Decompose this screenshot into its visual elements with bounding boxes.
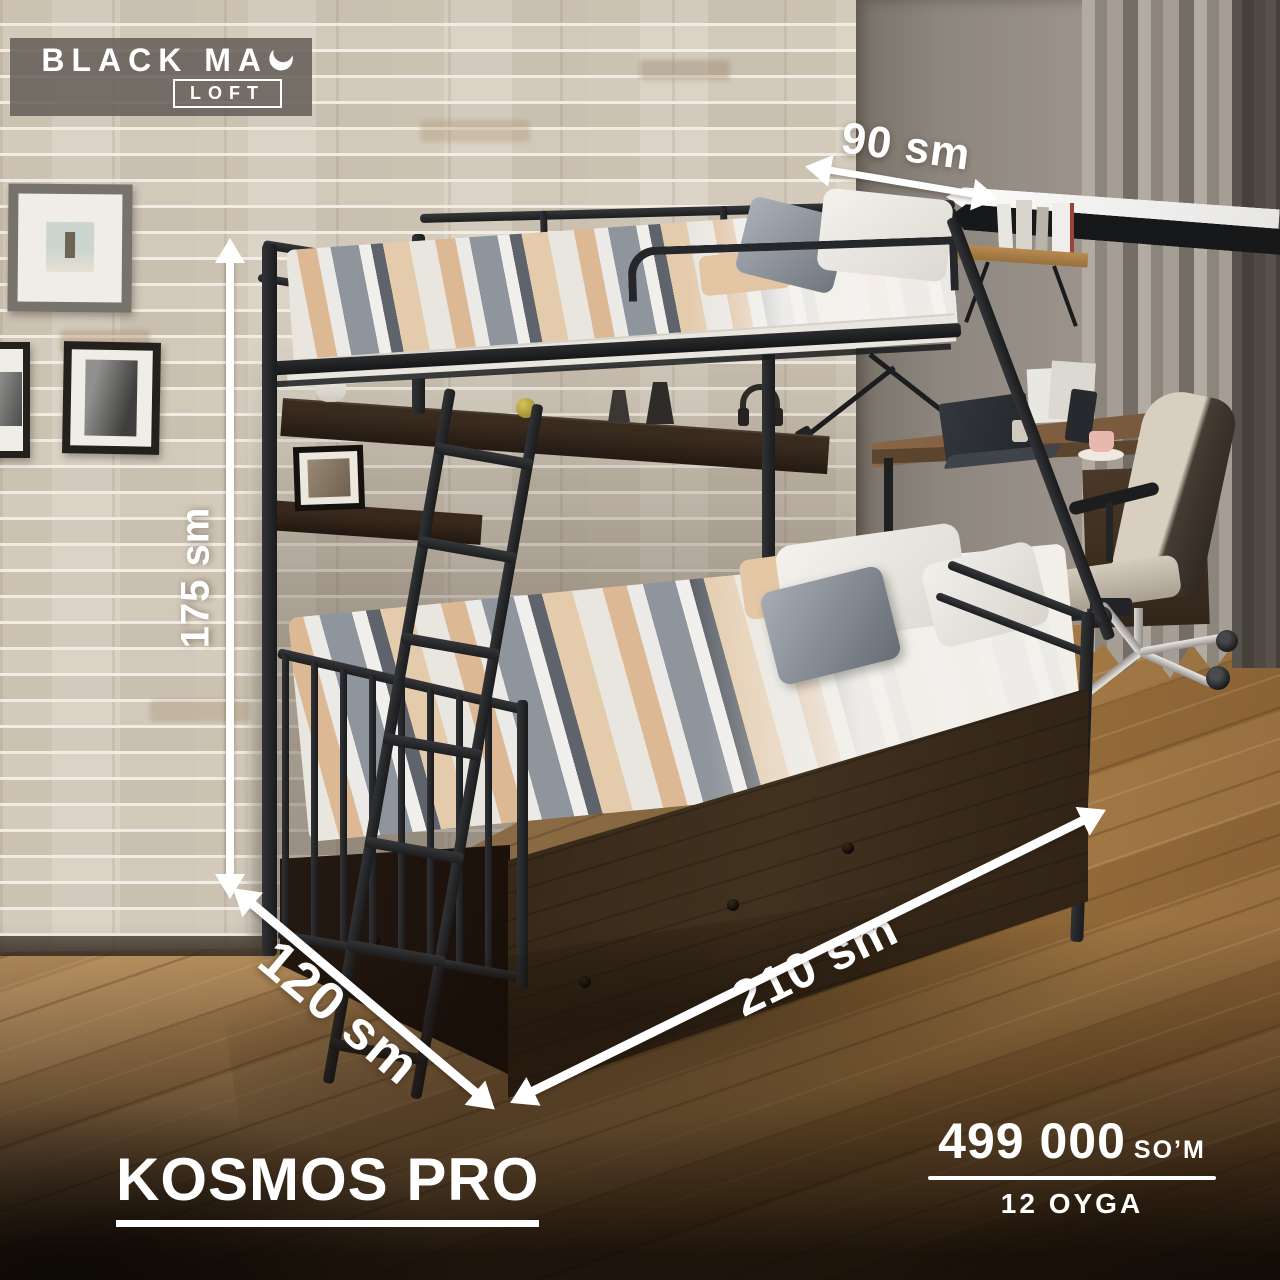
dimension-arrow <box>226 246 234 891</box>
brick-accent <box>640 60 730 80</box>
book <box>1035 207 1049 253</box>
ladder-rung <box>400 632 500 660</box>
ladder-rung <box>417 536 517 564</box>
brand-name-row: BLACK MA <box>41 44 296 76</box>
shelf-photo-frame <box>293 445 365 511</box>
brand-name: BLACK MA <box>41 44 268 76</box>
bed-post-left <box>262 244 277 956</box>
picture-photo <box>84 360 137 437</box>
book <box>1052 203 1074 253</box>
ladder-rung <box>346 939 446 967</box>
footboard-slat <box>340 668 347 946</box>
footboard-slat <box>282 654 289 936</box>
baseboard <box>0 936 268 956</box>
shelf-photo <box>307 458 350 497</box>
brand-badge: LOFT <box>173 79 282 108</box>
upper-guard-rail <box>627 236 959 301</box>
drawer-knob <box>842 842 854 854</box>
ladder-rung <box>364 836 464 864</box>
advertisement-poster: 90 sm 175 sm 120 sm 210 sm BLACK MA LOFT… <box>0 0 1280 1280</box>
brick-accent <box>420 120 530 142</box>
footboard-slat <box>485 701 492 969</box>
book <box>997 204 1013 253</box>
book <box>1016 200 1032 252</box>
footboard-slat <box>311 661 318 941</box>
dimension-label: 175 sm <box>174 503 219 653</box>
brand-logo-plate: BLACK MA LOFT <box>10 38 312 116</box>
curtain-dark-panel <box>1232 0 1280 668</box>
chair-wheel <box>1216 630 1238 652</box>
price-currency: SO’M <box>1134 1136 1206 1165</box>
chair-armrest-support <box>1106 502 1113 562</box>
ladder-rung <box>434 442 534 470</box>
picture-photo-detail <box>65 232 75 258</box>
picture-photo <box>0 372 22 426</box>
brick-accent <box>150 700 250 722</box>
price-divider <box>928 1176 1216 1180</box>
chair-wheel <box>1206 666 1230 690</box>
price-block: 499 000 SO’M 12 OYGA <box>926 1116 1218 1220</box>
picture-frame-left <box>0 342 30 458</box>
product-title: KOSMOS PRO <box>116 1150 539 1227</box>
price-term: 12 OYGA <box>926 1188 1218 1220</box>
headphone-earcup <box>738 408 749 426</box>
drawer-knob <box>727 899 739 911</box>
coffee-cup <box>1089 431 1114 452</box>
ladder-rung <box>382 733 482 761</box>
picture-frame-top <box>7 183 132 312</box>
footboard-post <box>517 700 528 990</box>
price-line: 499 000 SO’M <box>926 1116 1218 1166</box>
picture-frame-bw <box>62 341 161 455</box>
price-amount: 499 000 <box>938 1116 1126 1166</box>
